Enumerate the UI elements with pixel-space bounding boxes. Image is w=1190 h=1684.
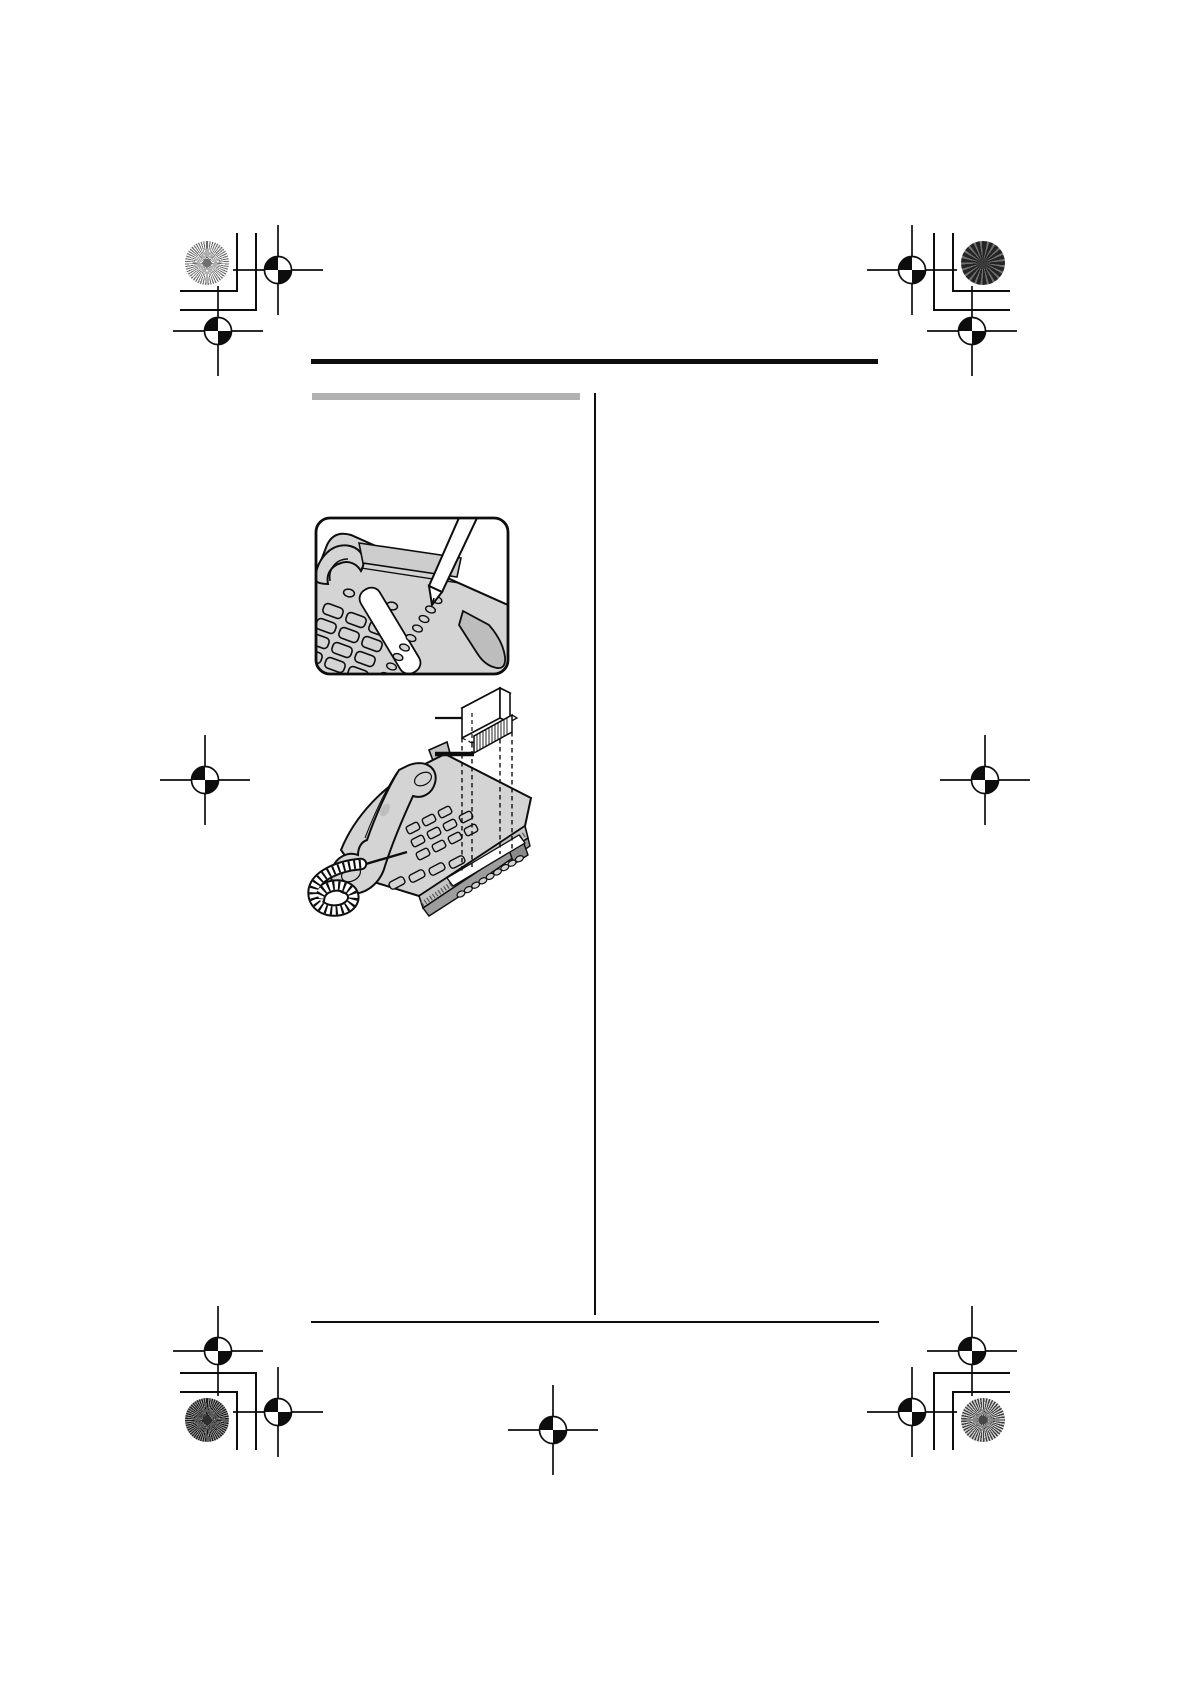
registration-mark-icon	[922, 281, 1022, 381]
registration-mark-icon	[228, 1362, 328, 1462]
star-target-icon	[185, 241, 229, 285]
registration-mark-icon	[168, 281, 268, 381]
star-target-icon	[961, 241, 1005, 285]
header-rule	[311, 359, 878, 364]
registration-mark-icon	[862, 1362, 962, 1462]
figure-phone-exploded-label	[295, 680, 535, 920]
figure-pen-on-label-strip	[313, 515, 511, 677]
column-divider	[594, 393, 596, 1315]
proof-page	[0, 0, 1190, 1684]
section-title-bar	[312, 393, 580, 400]
star-target-icon	[961, 1398, 1005, 1442]
footer-rule	[311, 1321, 879, 1323]
registration-mark-icon	[503, 1380, 603, 1480]
coiled-cord	[314, 864, 361, 911]
registration-mark-icon	[935, 730, 1035, 830]
telephone	[314, 742, 531, 916]
star-target-icon	[185, 1398, 229, 1442]
registration-mark-icon	[155, 730, 255, 830]
